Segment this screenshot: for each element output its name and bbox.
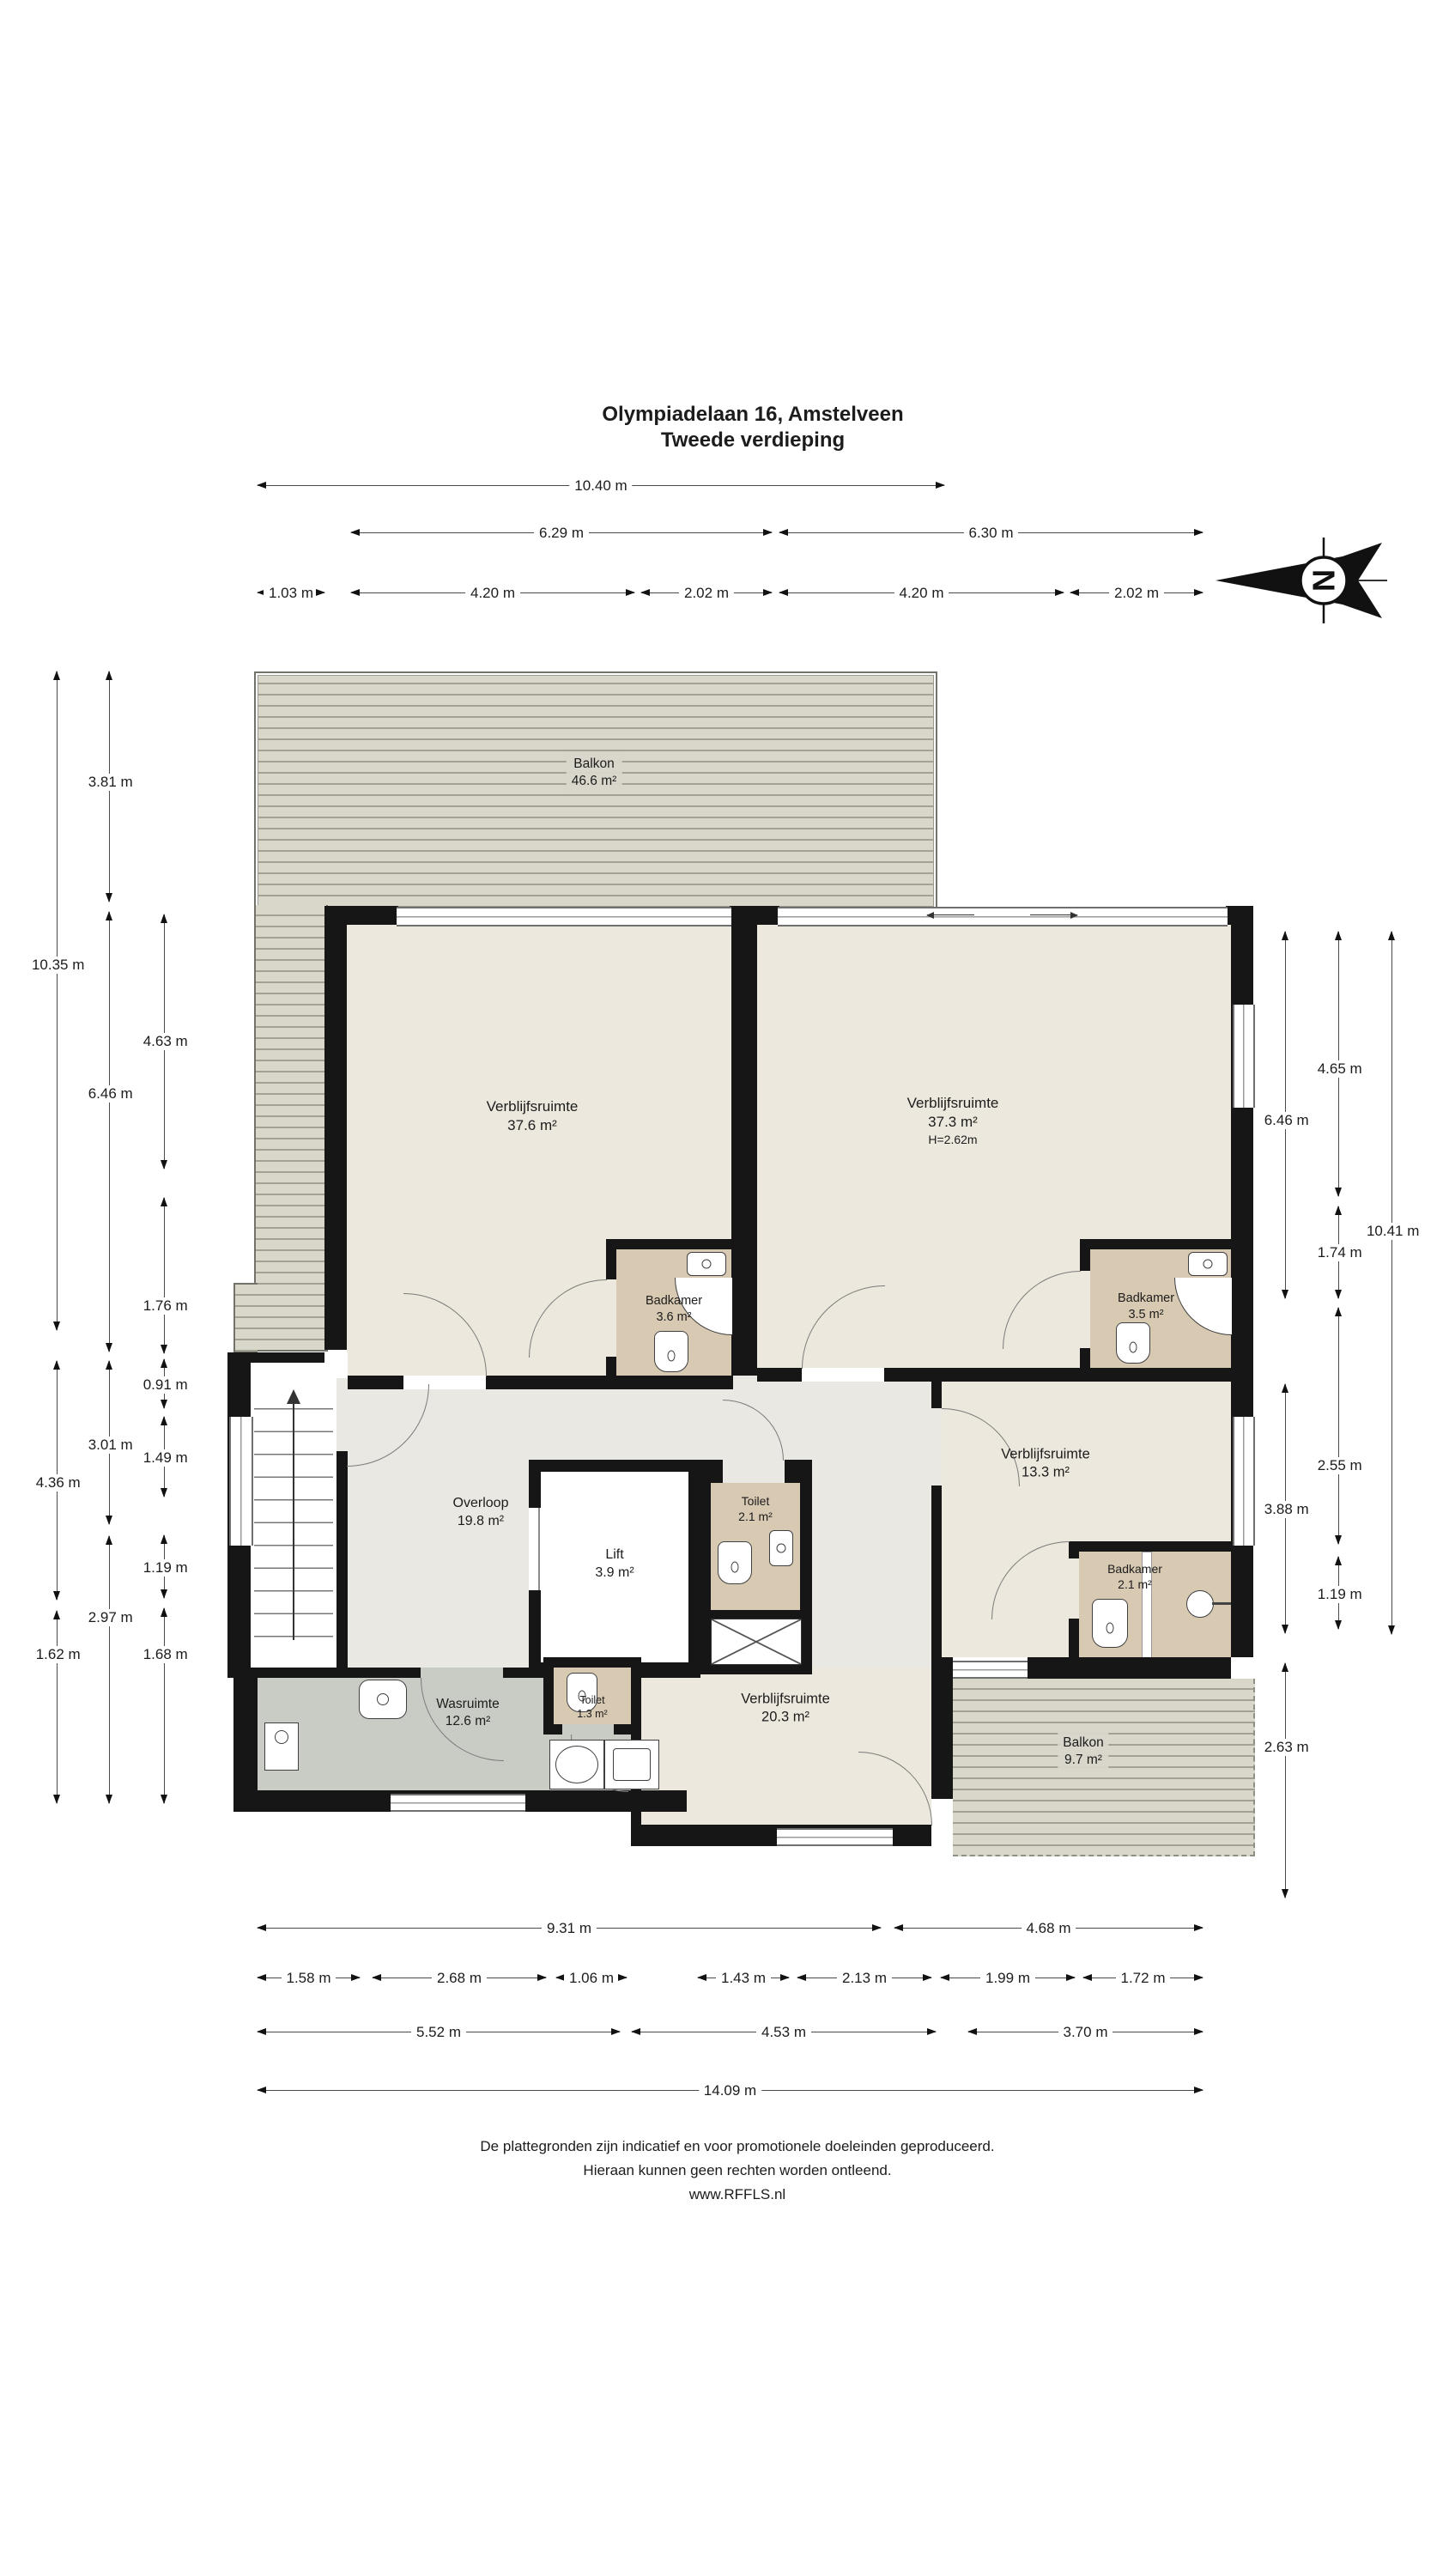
dim-left-seg-297: 2.97 m xyxy=(109,1536,110,1803)
dim-bottom-seg-158: 1.58 m xyxy=(258,1978,360,1978)
room-name: Badkamer xyxy=(646,1293,702,1309)
dryer-icon xyxy=(604,1740,659,1789)
room-name: Verblijfsruimte xyxy=(741,1691,830,1709)
dim-label: 2.13 m xyxy=(837,1970,892,1987)
room-label-verblijfsruimte-links: Verblijfsruimte 37.6 m² xyxy=(487,1097,579,1135)
room-name: Verblijfsruimte xyxy=(907,1094,999,1113)
wall-badkamer-midden-north xyxy=(1069,1541,1231,1552)
window-right-upper xyxy=(1233,1005,1255,1108)
dim-bottom-seg-199: 1.99 m xyxy=(941,1978,1075,1978)
dim-left-seg-301: 3.01 m xyxy=(109,1361,110,1524)
room-name: Badkamer xyxy=(1118,1291,1174,1307)
dim-label: 2.02 m xyxy=(1109,585,1164,602)
shower-head-icon xyxy=(1186,1590,1214,1618)
dim-top-total-balcony: 10.40 m xyxy=(258,485,944,486)
dim-right-seg-388: 3.88 m xyxy=(1285,1384,1286,1633)
room-area: 37.3 m² xyxy=(907,1113,999,1132)
dim-label: 1.43 m xyxy=(716,1970,771,1987)
room-name: Toilet xyxy=(738,1493,773,1509)
room-area: 46.6 m² xyxy=(572,773,617,790)
floorplan-page: Olympiadelaan 16, Amstelveen Tweede verd… xyxy=(0,0,1449,2576)
installation-shaft-x xyxy=(711,1619,802,1665)
room-label-verblijfsruimte-rechts: Verblijfsruimte 37.3 m² H=2.62m xyxy=(907,1094,999,1147)
dim-label: 3.70 m xyxy=(1058,2024,1113,2041)
wall-top-right xyxy=(1226,906,1253,925)
room-ceiling-height: H=2.62m xyxy=(907,1132,999,1147)
dim-left-seg-162: 1.62 m xyxy=(57,1611,58,1803)
wall-left xyxy=(324,925,347,1350)
room-area: 2.1 m² xyxy=(738,1509,773,1524)
compass-north-icon: N xyxy=(1212,532,1389,629)
dim-right-seg-646: 6.46 m xyxy=(1285,932,1286,1298)
dim-bottom-right-total: 4.68 m xyxy=(894,1928,1203,1929)
room-label-toilet-13: Toilet 1.3 m² xyxy=(577,1693,607,1722)
dim-left-seg-176: 1.76 m xyxy=(164,1198,165,1353)
room-area: 9.7 m² xyxy=(1063,1752,1103,1769)
dim-label: 4.36 m xyxy=(31,1474,86,1492)
toilet-icon xyxy=(718,1541,752,1584)
room-name: Overloop xyxy=(453,1495,509,1513)
dim-label: 4.20 m xyxy=(465,585,520,602)
dim-right-seg-119: 1.19 m xyxy=(1338,1557,1339,1629)
wall-badkamer-rechts-north xyxy=(1080,1239,1231,1249)
disclaimer-line-1: De plattegronden zijn indicatief en voor… xyxy=(381,2135,1094,2159)
door-opening-badkamer-links xyxy=(606,1279,616,1357)
dim-left-seg-091: 0.91 m xyxy=(164,1359,165,1408)
dim-label: 10.41 m xyxy=(1361,1223,1424,1240)
window-top-left xyxy=(397,907,731,927)
window-stairwell xyxy=(229,1417,253,1546)
dim-top-seg-2: 4.20 m xyxy=(351,592,634,593)
dim-label: 14.09 m xyxy=(699,2082,761,2099)
wall-divider-center xyxy=(731,925,757,1376)
door-opening-badkamer-midden xyxy=(1069,1558,1079,1619)
room-area: 1.3 m² xyxy=(577,1707,607,1721)
room-name: Toilet xyxy=(577,1693,607,1707)
wall-wasruimte-north xyxy=(335,1668,700,1678)
window-vb-onder-south xyxy=(777,1828,893,1846)
sink-icon xyxy=(687,1252,726,1276)
room-label-overloop: Overloop 19.8 m² xyxy=(453,1495,509,1531)
dim-label: 2.02 m xyxy=(679,585,734,602)
disclaimer-line-2: Hieraan kunnen geen rechten worden ontle… xyxy=(381,2159,1094,2183)
dim-label: 6.46 m xyxy=(83,1085,138,1103)
dim-bottom-seg-106: 1.06 m xyxy=(556,1978,627,1978)
title-floor: Tweede verdieping xyxy=(495,428,1010,453)
dim-label: 4.53 m xyxy=(756,2024,811,2041)
dim-bottom-seg-552: 5.52 m xyxy=(258,2032,620,2032)
title-address: Olympiadelaan 16, Amstelveen xyxy=(495,402,1010,428)
room-label-badkamer-rechts: Badkamer 3.5 m² xyxy=(1118,1291,1174,1323)
dim-right-seg-255: 2.55 m xyxy=(1338,1308,1339,1544)
dim-right-total: 10.41 m xyxy=(1391,932,1392,1634)
dim-label: 4.68 m xyxy=(1022,1920,1076,1937)
dim-bottom-seg-172: 1.72 m xyxy=(1083,1978,1203,1978)
room-label-badkamer-links: Badkamer 3.6 m² xyxy=(646,1293,702,1326)
dim-left-seg-463: 4.63 m xyxy=(164,914,165,1169)
balcony-door-opening xyxy=(324,1352,348,1378)
page-title: Olympiadelaan 16, Amstelveen Tweede verd… xyxy=(495,402,1010,453)
room-label-balkon-boven: Balkon 46.6 m² xyxy=(567,754,622,792)
dim-label: 5.52 m xyxy=(411,2024,466,2041)
window-balcony-door-midden xyxy=(942,1661,1028,1679)
room-label-verblijfsruimte-midden: Verblijfsruimte 13.3 m² xyxy=(1001,1446,1090,1483)
dim-label: 2.97 m xyxy=(83,1609,138,1626)
window-wasruimte-south xyxy=(391,1794,525,1812)
dim-label: 2.55 m xyxy=(1313,1457,1367,1474)
balcony-left-step xyxy=(233,1283,258,1353)
dim-bottom-seg-370: 3.70 m xyxy=(968,2032,1203,2032)
dim-label: 9.31 m xyxy=(542,1920,597,1937)
dim-label: 1.19 m xyxy=(138,1559,193,1577)
dim-label: 1.68 m xyxy=(138,1646,193,1663)
room-area: 3.5 m² xyxy=(1118,1307,1174,1323)
room-area: 13.3 m² xyxy=(1001,1464,1090,1482)
room-name: Wasruimte xyxy=(436,1696,500,1713)
lift-door-line xyxy=(538,1508,540,1590)
room-name: Verblijfsruimte xyxy=(1001,1446,1090,1464)
window-top-right xyxy=(778,907,1228,927)
disclaimer-url: www.RFFLS.nl xyxy=(381,2183,1094,2207)
stairs-direction-line xyxy=(293,1402,294,1640)
dim-label: 10.40 m xyxy=(569,477,632,495)
door-opening-badkamer-rechts xyxy=(1080,1271,1090,1348)
balcony-left-strip xyxy=(254,905,328,1352)
dim-label: 2.63 m xyxy=(1259,1739,1314,1756)
dim-top-seg-3: 2.02 m xyxy=(641,592,772,593)
room-area: 19.8 m² xyxy=(453,1513,509,1531)
dim-bottom-seg-268: 2.68 m xyxy=(373,1978,546,1978)
window-right-lower xyxy=(1233,1417,1255,1546)
dim-label: 1.06 m xyxy=(564,1970,619,1987)
wall-badkamer-links-north xyxy=(606,1239,733,1249)
dim-label: 1.74 m xyxy=(1313,1244,1367,1261)
sliding-door-arrow-right-icon xyxy=(1030,914,1077,915)
toilet-13-door-opening xyxy=(562,1724,614,1735)
dim-bottom-left-total: 9.31 m xyxy=(258,1928,881,1929)
room-label-lift: Lift 3.9 m² xyxy=(595,1546,634,1583)
dim-top-seg-5: 2.02 m xyxy=(1070,592,1203,593)
dim-left-seg-149: 1.49 m xyxy=(164,1417,165,1497)
wall-balcony-pier xyxy=(931,1657,953,1799)
dim-left-seg-646: 6.46 m xyxy=(109,912,110,1352)
room-area: 12.6 m² xyxy=(436,1713,500,1730)
sliding-door-arrow-left-icon xyxy=(927,914,974,915)
dim-right-seg-465: 4.65 m xyxy=(1338,932,1339,1196)
dim-label: 3.81 m xyxy=(83,774,138,791)
wall-vb-midden-south xyxy=(1028,1657,1231,1679)
sink-icon xyxy=(359,1680,407,1719)
dim-label: 6.29 m xyxy=(534,525,589,542)
room-name: Verblijfsruimte xyxy=(487,1097,579,1116)
dim-label: 4.65 m xyxy=(1313,1060,1367,1078)
sink-icon xyxy=(1188,1252,1228,1276)
dim-bottom-seg-213: 2.13 m xyxy=(797,1978,931,1978)
dim-label: 1.03 m xyxy=(264,585,318,602)
dim-label: 1.19 m xyxy=(1313,1586,1367,1603)
dim-top-seg-4: 4.20 m xyxy=(779,592,1064,593)
dim-label: 4.20 m xyxy=(894,585,949,602)
dim-left-total-upper: 10.35 m xyxy=(57,671,58,1330)
dim-left-seg-436: 4.36 m xyxy=(57,1361,58,1600)
wall-top-mid-pier xyxy=(730,906,779,925)
dim-left-seg-168: 1.68 m xyxy=(164,1608,165,1803)
room-area: 20.3 m² xyxy=(741,1709,830,1727)
room-label-wasruimte: Wasruimte 12.6 m² xyxy=(436,1696,500,1730)
door-opening-wasruimte xyxy=(421,1668,503,1678)
room-area: 3.9 m² xyxy=(595,1564,634,1583)
room-label-badkamer-midden: Badkamer 2.1 m² xyxy=(1107,1561,1162,1592)
dim-top-seg-1: 1.03 m xyxy=(258,592,324,593)
door-opening-room2 xyxy=(802,1368,884,1382)
dim-label: 3.01 m xyxy=(83,1437,138,1454)
dim-label: 4.63 m xyxy=(138,1033,193,1050)
compass-letter: N xyxy=(1307,569,1342,592)
dim-right-seg-263: 2.63 m xyxy=(1285,1663,1286,1898)
dim-label: 3.88 m xyxy=(1259,1501,1314,1518)
dim-left-balcony-height: 3.81 m xyxy=(109,671,110,902)
dim-label: 0.91 m xyxy=(138,1376,193,1394)
dim-label: 1.76 m xyxy=(138,1297,193,1315)
dim-label: 1.49 m xyxy=(138,1449,193,1467)
room-name: Badkamer xyxy=(1107,1561,1162,1577)
stairs-up-arrow-icon xyxy=(287,1389,300,1404)
toilet-icon xyxy=(1116,1322,1150,1364)
dim-label: 6.46 m xyxy=(1259,1112,1314,1129)
dim-label: 1.72 m xyxy=(1116,1970,1171,1987)
sink-icon xyxy=(769,1530,793,1566)
toilet-icon xyxy=(1092,1599,1128,1648)
room-name: Balkon xyxy=(572,756,617,773)
disclaimer: De plattegronden zijn indicatief en voor… xyxy=(381,2135,1094,2207)
room-area: 37.6 m² xyxy=(487,1116,579,1135)
dim-right-seg-174: 1.74 m xyxy=(1338,1206,1339,1298)
room-name: Balkon xyxy=(1063,1735,1103,1752)
dim-label: 1.99 m xyxy=(980,1970,1035,1987)
dim-left-seg-119: 1.19 m xyxy=(164,1535,165,1598)
dim-label: 2.68 m xyxy=(432,1970,487,1987)
washing-machine-icon xyxy=(549,1740,604,1789)
shower-arm-icon xyxy=(1212,1602,1231,1605)
dim-bottom-grand-total: 14.09 m xyxy=(258,2090,1203,2091)
door-opening-vb-midden xyxy=(931,1408,942,1485)
toilet-icon xyxy=(654,1331,688,1372)
dim-top-left-half: 6.29 m xyxy=(351,532,772,533)
dim-label: 1.58 m xyxy=(282,1970,336,1987)
dim-label: 1.62 m xyxy=(31,1646,86,1663)
dim-label: 6.30 m xyxy=(964,525,1019,542)
dim-bottom-seg-453: 4.53 m xyxy=(632,2032,936,2032)
boiler-icon xyxy=(264,1722,299,1771)
toilet-21-door-opening xyxy=(723,1460,785,1483)
room-area: 2.1 m² xyxy=(1107,1577,1162,1592)
room-name: Lift xyxy=(595,1546,634,1564)
room-label-verblijfsruimte-onder: Verblijfsruimte 20.3 m² xyxy=(741,1691,830,1728)
dim-label: 10.35 m xyxy=(27,957,89,974)
dim-bottom-seg-143: 1.43 m xyxy=(698,1978,789,1978)
dim-top-right-half: 6.30 m xyxy=(779,532,1203,533)
room-area: 3.6 m² xyxy=(646,1309,702,1326)
room-label-toilet-21: Toilet 2.1 m² xyxy=(738,1493,773,1524)
room-label-balkon-onder: Balkon 9.7 m² xyxy=(1058,1733,1108,1771)
wall-top-left xyxy=(324,906,398,925)
